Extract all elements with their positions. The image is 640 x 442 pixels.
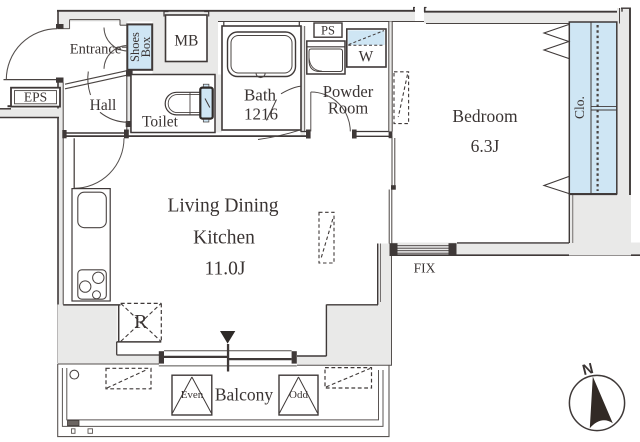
svg-text:Clo.: Clo. [572,96,587,119]
svg-text:Hall: Hall [90,97,117,114]
svg-text:FIX: FIX [414,261,436,276]
svg-text:Kitchen: Kitchen [193,228,255,249]
svg-text:EPS: EPS [24,90,47,105]
svg-text:Even: Even [181,389,204,401]
svg-text:Room: Room [328,99,369,118]
svg-text:R: R [134,311,148,333]
svg-text:11.0J: 11.0J [205,259,246,280]
svg-text:Box: Box [139,36,153,58]
svg-text:Odd: Odd [289,389,308,401]
svg-text:Living Dining: Living Dining [167,196,278,217]
svg-text:W: W [359,49,374,66]
svg-text:Toilet: Toilet [142,114,179,131]
svg-text:6.3J: 6.3J [471,136,500,156]
svg-text:Entrance: Entrance [70,42,122,58]
svg-text:PS: PS [321,24,335,38]
svg-text:Bath: Bath [244,86,277,105]
svg-text:MB: MB [174,33,198,50]
svg-text:Balcony: Balcony [215,385,274,405]
svg-text:Bedroom: Bedroom [452,106,518,126]
